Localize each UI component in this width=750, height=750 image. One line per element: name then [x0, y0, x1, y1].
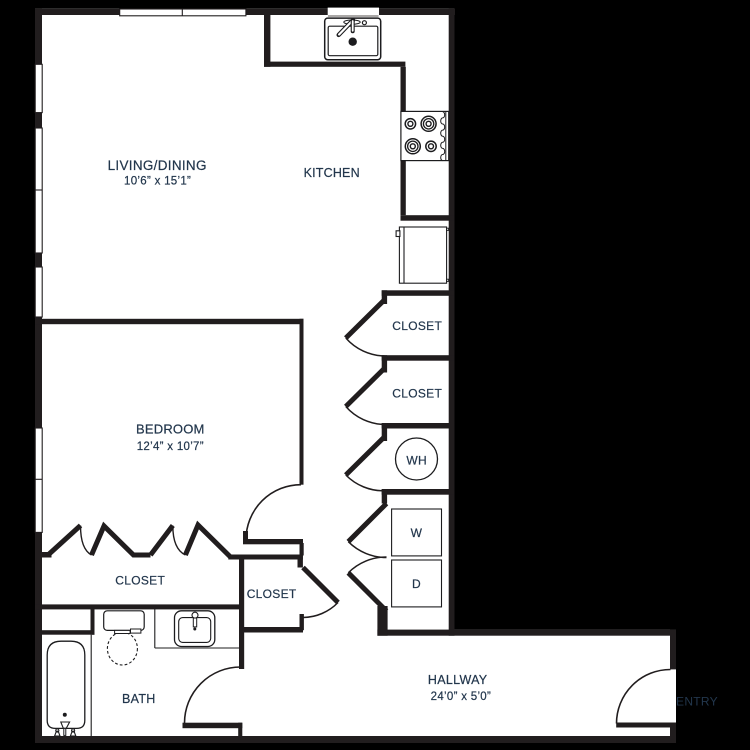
svg-text:D: D	[412, 577, 421, 591]
svg-text:ENTRY: ENTRY	[676, 695, 718, 709]
svg-text:WH: WH	[406, 454, 427, 468]
svg-text:BEDROOM: BEDROOM	[136, 422, 205, 437]
svg-text:W: W	[411, 526, 423, 540]
svg-text:CLOSET: CLOSET	[247, 587, 297, 601]
svg-text:KITCHEN: KITCHEN	[304, 166, 360, 180]
svg-text:10’6” x 15’1”: 10’6” x 15’1”	[124, 176, 191, 188]
svg-text:CLOSET: CLOSET	[392, 319, 442, 333]
svg-text:CLOSET: CLOSET	[392, 387, 442, 401]
svg-text:BATH: BATH	[122, 692, 156, 706]
svg-text:24’0” x 5’0”: 24’0” x 5’0”	[431, 691, 492, 703]
svg-text:HALLWAY: HALLWAY	[428, 673, 488, 687]
svg-text:CLOSET: CLOSET	[115, 574, 165, 588]
svg-text:12’4” x 10’7”: 12’4” x 10’7”	[137, 441, 204, 453]
svg-text:LIVING/DINING: LIVING/DINING	[108, 158, 207, 173]
